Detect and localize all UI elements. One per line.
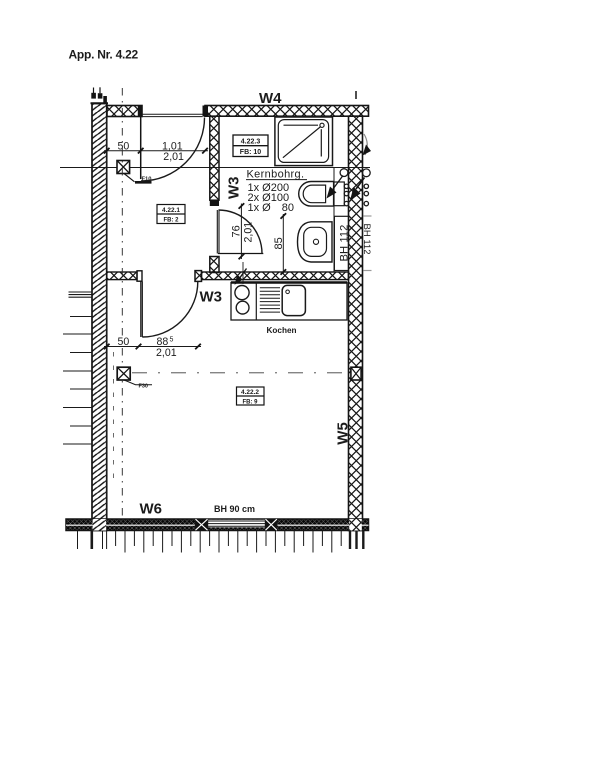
svg-text:2,01: 2,01	[242, 222, 254, 243]
svg-text:2,01: 2,01	[163, 151, 184, 163]
svg-text:FB: 9: FB: 9	[243, 400, 259, 406]
svg-text:2,01: 2,01	[156, 347, 177, 359]
svg-text:FB: 2: FB: 2	[164, 218, 180, 224]
svg-text:50: 50	[118, 141, 130, 153]
svg-text:BH 112: BH 112	[361, 224, 372, 255]
svg-text:W3: W3	[226, 177, 243, 200]
svg-text:BH 90 cm: BH 90 cm	[214, 504, 255, 514]
svg-text:W5: W5	[334, 422, 351, 445]
svg-text:Kernbohrg.: Kernbohrg.	[247, 169, 305, 181]
svg-text:App. Nr. 4.22: App. Nr. 4.22	[69, 48, 139, 62]
svg-text:5: 5	[170, 337, 174, 344]
svg-text:W6: W6	[140, 501, 163, 518]
svg-text:4.22.2: 4.22.2	[241, 389, 259, 396]
svg-text:85: 85	[273, 237, 285, 249]
svg-text:4.22.1: 4.22.1	[162, 207, 180, 214]
svg-text:F30: F30	[139, 384, 148, 390]
svg-text:W4: W4	[259, 90, 282, 107]
svg-text:FB: 10: FB: 10	[240, 149, 262, 156]
svg-text:W3: W3	[200, 289, 223, 306]
svg-text:4.22.3: 4.22.3	[241, 139, 261, 146]
svg-text:50: 50	[118, 336, 130, 348]
svg-text:BH 112: BH 112	[339, 225, 351, 262]
svg-text:F10: F10	[142, 177, 152, 183]
svg-text:76: 76	[230, 225, 242, 237]
svg-text:1x Ø 80: 1x Ø 80	[248, 202, 294, 214]
svg-text:Kochen: Kochen	[267, 326, 297, 335]
